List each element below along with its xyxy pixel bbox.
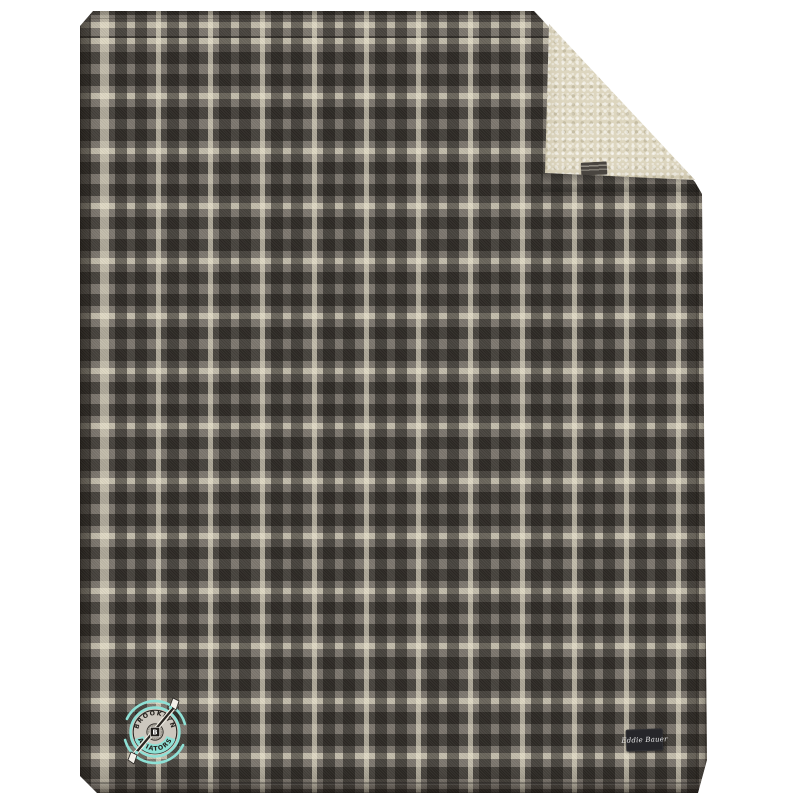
blade-accent-top bbox=[169, 706, 172, 709]
blade-accent-bottom bbox=[135, 751, 138, 754]
product-photo: Eddie Bauer BROOKLYN AVIATORS bbox=[0, 0, 800, 800]
bottom-hem-roll bbox=[83, 782, 703, 785]
team-logo-badge: BROOKLYN AVIATORS B bbox=[119, 694, 191, 770]
care-tag bbox=[581, 161, 608, 175]
sherpa-folded-corner bbox=[540, 18, 700, 184]
brand-label: Eddie Bauer bbox=[626, 728, 664, 751]
brand-label-text: Eddie Bauer bbox=[621, 735, 667, 745]
monogram-letter: B bbox=[152, 729, 157, 737]
